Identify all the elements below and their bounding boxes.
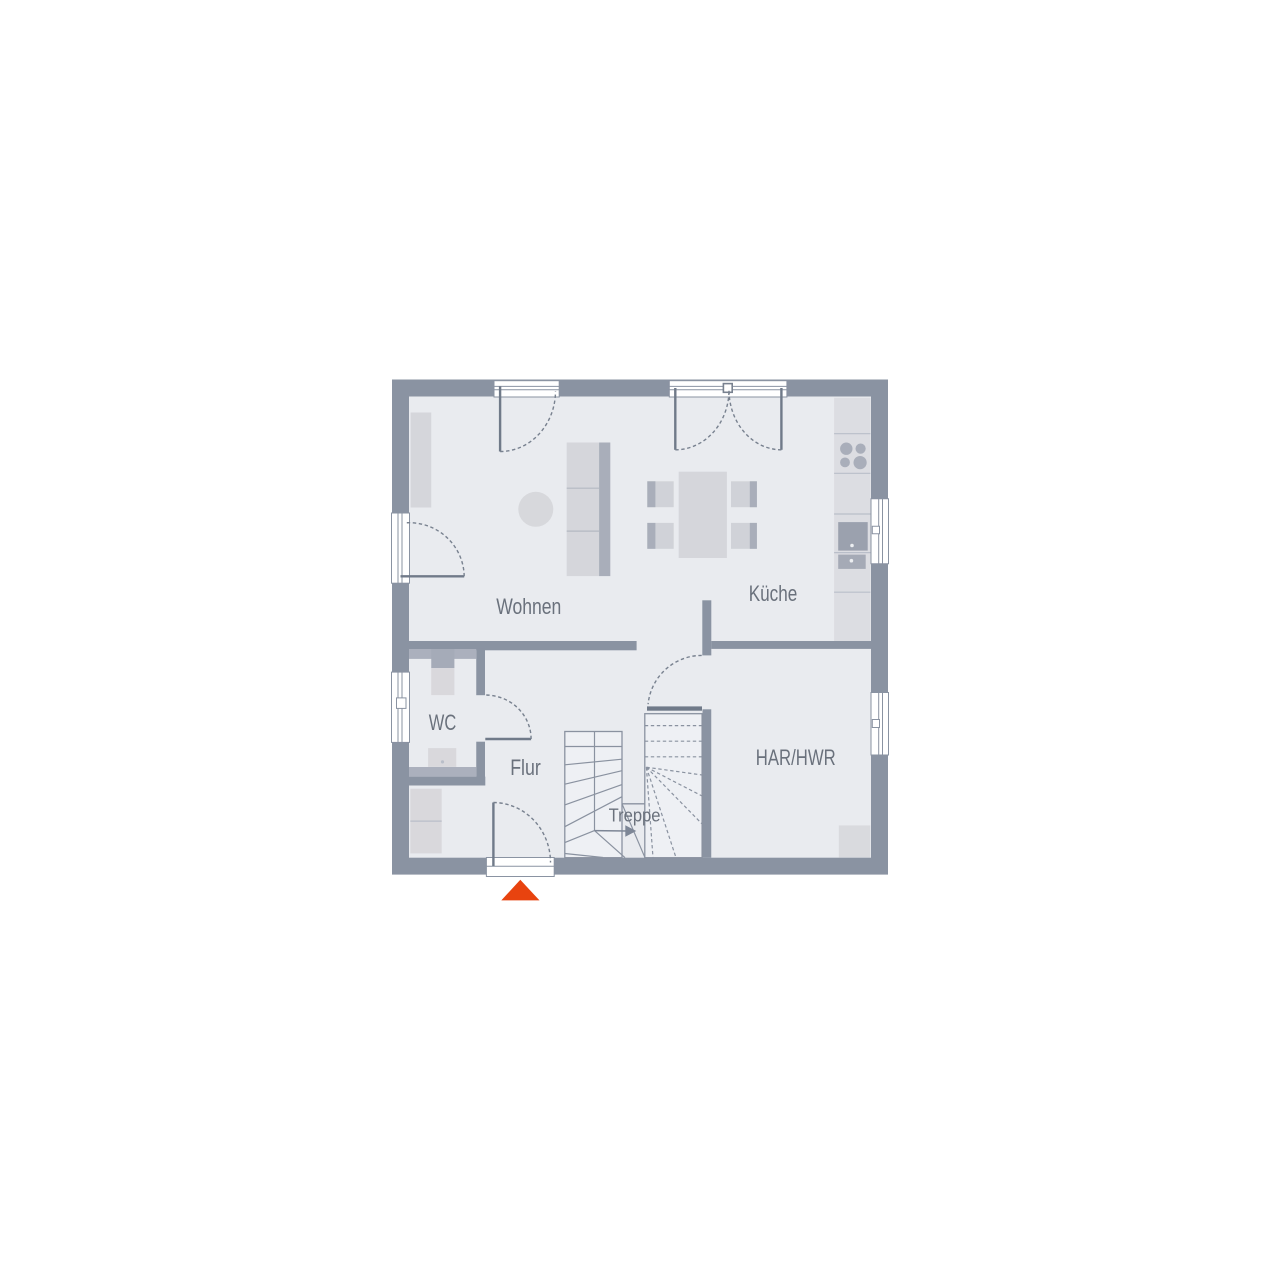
svg-text:WC: WC	[429, 710, 457, 735]
svg-text:Treppe: Treppe	[609, 806, 661, 826]
svg-text:Küche: Küche	[749, 581, 798, 606]
svg-text:Flur: Flur	[510, 755, 541, 780]
svg-text:HAR/HWR: HAR/HWR	[756, 745, 836, 770]
svg-text:Wohnen: Wohnen	[496, 594, 561, 619]
